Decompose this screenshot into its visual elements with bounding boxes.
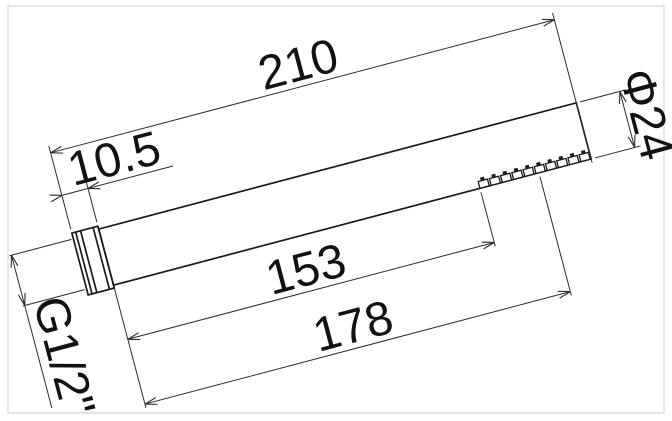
- extension-line: [115, 289, 146, 408]
- shower-wand-drawing: 210 10.5 153 178: [0, 0, 672, 421]
- tube-body: [99, 103, 591, 285]
- arrowhead: [49, 192, 62, 202]
- dim-text-10-5: 10.5: [62, 122, 166, 197]
- dim-text-diameter: Φ24: [609, 63, 672, 165]
- nozzle: [511, 168, 523, 180]
- extension-line: [540, 177, 571, 296]
- nozzle: [522, 165, 534, 177]
- dim-text-153: 153: [261, 234, 352, 306]
- nozzle: [500, 170, 512, 182]
- nozzle: [567, 153, 579, 165]
- extension-line: [10, 239, 72, 255]
- dim-text-178: 178: [308, 291, 399, 363]
- dimension-153: 153: [115, 192, 513, 408]
- technical-drawing-page: 210 10.5 153 178: [0, 0, 672, 421]
- nozzle: [477, 176, 489, 188]
- nozzle: [545, 159, 557, 171]
- extension-line: [553, 13, 593, 163]
- nozzle: [534, 162, 546, 174]
- nut-chamfer-lines: [76, 227, 110, 293]
- dimension-thread-g12: G1/2": [8, 239, 115, 421]
- dim-text-210: 210: [253, 29, 344, 101]
- dimension-178: 178: [115, 177, 572, 409]
- nozzle: [556, 156, 568, 168]
- nozzle: [489, 173, 501, 185]
- dimension-10-5: 10.5: [38, 120, 182, 233]
- wand-group: 210 10.5 153 178: [0, 0, 672, 421]
- extension-line: [481, 192, 495, 246]
- nozzle-row: [477, 150, 590, 189]
- dim-text-thread: G1/2": [22, 291, 104, 421]
